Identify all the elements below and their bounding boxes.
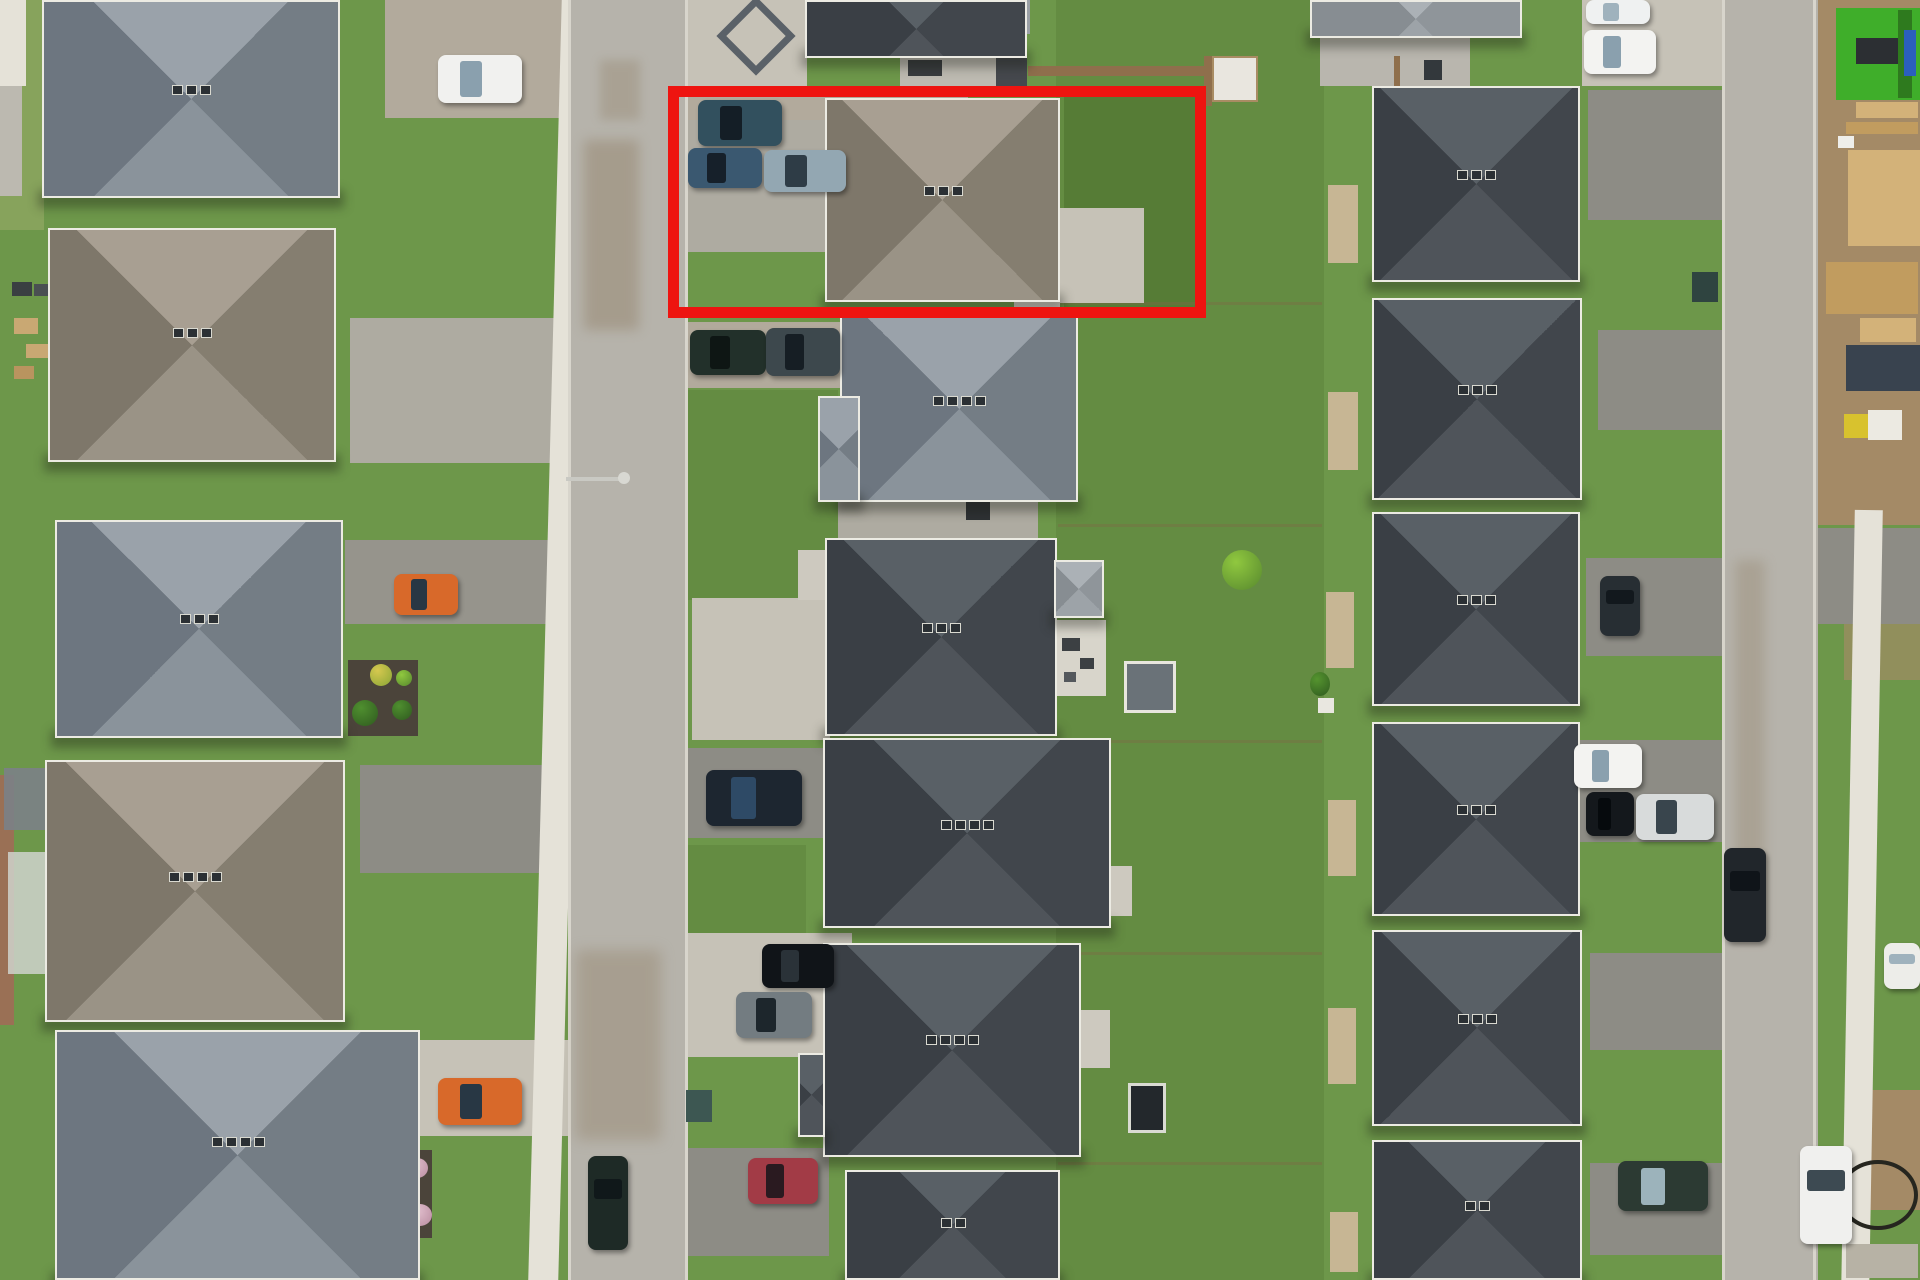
house-left-5 [55, 1030, 420, 1280]
roof-vent [922, 623, 933, 633]
roof-vent [950, 623, 961, 633]
roof-vent [975, 396, 986, 406]
bright-tree [1222, 550, 1262, 590]
car-windshield [731, 777, 756, 818]
lawn-furniture-3 [14, 366, 34, 379]
deck-r3 [1326, 592, 1354, 668]
backyard-fence-4 [1058, 952, 1322, 955]
curb-right-b [1813, 0, 1816, 1280]
house-right-1 [1372, 86, 1580, 282]
solar-pad-m5 [1128, 1083, 1166, 1133]
car-windshield [1730, 871, 1760, 892]
black-suv-m5 [762, 944, 834, 988]
highlight-box [668, 86, 1206, 318]
roof-vent [1458, 1014, 1469, 1024]
backyard-shed [1124, 661, 1176, 713]
roof-vent [201, 328, 212, 338]
roof-vent [940, 1035, 951, 1045]
roof-vent [954, 1035, 965, 1045]
roof-vent [183, 872, 194, 882]
house-mid-3 [825, 538, 1057, 736]
car-windshield [1807, 1170, 1844, 1192]
patio-furniture-1 [1062, 638, 1080, 651]
lumber-stack-2 [1846, 122, 1918, 134]
house-mid-5 [823, 943, 1081, 1157]
house-left-3 [55, 520, 343, 738]
roof-vent [194, 614, 205, 624]
car-windshield [766, 1164, 784, 1198]
roof-vent [180, 614, 191, 624]
roof-vent [1486, 385, 1497, 395]
house-left-1 [42, 0, 340, 198]
black-suv-r4 [1586, 792, 1634, 836]
gray-suv-m2 [766, 328, 840, 376]
car-windshield [1889, 954, 1915, 964]
machine-white [1868, 410, 1902, 440]
roof-vent [1472, 385, 1483, 395]
red-car-m6 [748, 1158, 818, 1204]
roof-vent [955, 820, 966, 830]
roof-vent [1472, 1014, 1483, 1024]
roof-vent [947, 396, 958, 406]
white-van-r4 [1574, 744, 1642, 788]
car-windshield [411, 579, 428, 609]
car-windshield [1641, 1168, 1664, 1205]
wood-fence-top [1028, 66, 1208, 76]
roof-vent [1471, 805, 1482, 815]
roof-vent [941, 1218, 952, 1228]
curb-right-a [1722, 0, 1725, 1280]
car-windshield [781, 950, 800, 983]
deck-r5 [1328, 1008, 1356, 1084]
car-windshield [1598, 798, 1610, 831]
patio-furniture-2 [1080, 658, 1094, 669]
car-windshield [1656, 800, 1676, 834]
roof-vent [969, 820, 980, 830]
house-right-5 [1372, 930, 1582, 1126]
car-windshield [1592, 750, 1610, 783]
car-windshield [594, 1179, 623, 1200]
silver-car-r4 [1636, 794, 1714, 840]
roof-vent [926, 1035, 937, 1045]
roof-vent [1479, 1201, 1490, 1211]
roof-vent [1465, 1201, 1476, 1211]
roof-vent [1471, 595, 1482, 605]
street-stain-3 [600, 60, 640, 120]
roof-vent [197, 872, 208, 882]
deck-r4 [1328, 800, 1356, 876]
roof-vent [208, 614, 219, 624]
black-car-street-right [1724, 848, 1766, 942]
backyard-fence-5 [1058, 1162, 1322, 1165]
house-mid-4 [823, 738, 1111, 928]
white-car-r0-a [1586, 0, 1650, 24]
streetlight-arm [566, 477, 620, 481]
house-right-2 [1372, 298, 1582, 500]
green-suv-r6 [1618, 1161, 1708, 1211]
bush-l3-b [370, 664, 392, 686]
orange-car-l3 [394, 574, 458, 615]
house-left-2 [48, 228, 336, 462]
roof-vent [936, 623, 947, 633]
roof-vent [1485, 170, 1496, 180]
backyard-fence-2 [1058, 524, 1322, 527]
house-right-3 [1372, 512, 1580, 706]
lawn-furniture-1 [14, 318, 38, 334]
roof-vent [1458, 385, 1469, 395]
deck-r2 [1328, 392, 1358, 470]
white-car-far-right [1884, 943, 1920, 989]
bush-r3 [1310, 672, 1330, 696]
roof-vent [186, 85, 197, 95]
shipping-container [1846, 345, 1920, 391]
navy-pickup-m4 [706, 770, 802, 826]
lumber-stack-1 [1856, 102, 1918, 118]
stone-steps-m5 [1080, 1010, 1110, 1068]
street-stain-1 [584, 140, 639, 330]
car-windshield [460, 1084, 482, 1119]
roof-vent [1457, 595, 1468, 605]
house-mid-2-garage [818, 396, 860, 502]
bin-l2-a [12, 282, 32, 296]
roof-vent [1471, 170, 1482, 180]
roof-vent [1457, 805, 1468, 815]
driveway-r2 [1598, 330, 1722, 430]
driveway-r1 [1588, 90, 1722, 220]
pallet-stack-bottom [1846, 1244, 1918, 1278]
bush-l3-c [392, 700, 412, 720]
bush-l3-a [352, 700, 378, 726]
dark-green-suv-m2 [690, 330, 766, 375]
driveway-r5 [1590, 953, 1722, 1050]
curb-left-a [568, 0, 571, 1280]
roof-vent [983, 820, 994, 830]
bin-m5 [686, 1090, 712, 1122]
gazebo-mid-3 [1054, 560, 1104, 618]
roof-vent [212, 1137, 223, 1147]
pavement-topleft-corner [0, 0, 26, 86]
house-left-4 [45, 760, 345, 1022]
roof-vent [173, 328, 184, 338]
car-windshield [1603, 3, 1620, 21]
roof-vent [200, 85, 211, 95]
dark-car-street-left [588, 1156, 628, 1250]
car-windshield [710, 336, 730, 369]
roof-vent [955, 1218, 966, 1228]
lumber-pile-2 [1826, 262, 1918, 314]
car-windshield [1606, 590, 1635, 603]
white-car-r0-b [1584, 30, 1656, 74]
car-windshield [1603, 36, 1622, 69]
patio-furniture-3 [1064, 672, 1076, 682]
ac-rtop [1424, 60, 1442, 80]
roof-vent [187, 328, 198, 338]
deck-r1 [1328, 185, 1358, 263]
roof-vent [172, 85, 183, 95]
streetlight-head [618, 472, 630, 484]
lumber-stack-3 [1860, 318, 1916, 342]
roof-vent [211, 872, 222, 882]
roof-vent [1486, 1014, 1497, 1024]
aerial-photo [0, 0, 1920, 1280]
fence-rtop [1394, 56, 1400, 86]
orange-car-l5 [438, 1078, 522, 1125]
roof-vent [941, 820, 952, 830]
deck-r6 [1330, 1212, 1358, 1272]
white-car-street-right [1800, 1146, 1852, 1244]
house-mid-2 [840, 316, 1078, 502]
car-windshield [756, 998, 776, 1032]
white-suv-l1 [438, 55, 522, 103]
car-windshield [460, 61, 482, 97]
debris-white [1838, 136, 1854, 148]
dark-suv-r3 [1600, 576, 1640, 636]
roof-vent [240, 1137, 251, 1147]
house-right-top [1310, 0, 1522, 38]
telehandler-engine [1856, 38, 1898, 64]
roof-vent [961, 396, 972, 406]
front-lawn-strip-m4 [688, 845, 806, 935]
roof-vent [1485, 805, 1496, 815]
road-topleft-corner [0, 86, 22, 196]
house-mid-5-garage [798, 1053, 825, 1137]
telehandler-decal [1904, 30, 1916, 76]
bin-right-lawn [1692, 272, 1718, 302]
roof-vent [254, 1137, 265, 1147]
ac-r3 [1318, 698, 1334, 713]
house-mid-top [805, 0, 1027, 58]
roof-vent [226, 1137, 237, 1147]
house-right-4 [1372, 722, 1580, 916]
roof-vent [1457, 170, 1468, 180]
lumber-pile-long [1848, 150, 1920, 246]
roof-vent [968, 1035, 979, 1045]
car-windshield [785, 334, 804, 370]
white-shed-top [1212, 56, 1258, 102]
house-right-6 [1372, 1140, 1582, 1280]
lawn-furniture-2 [26, 344, 48, 358]
bush-l3-d [396, 670, 412, 686]
driveway-m3 [692, 598, 830, 740]
roof-vent [1485, 595, 1496, 605]
machine-yellow [1844, 414, 1870, 438]
roof-vent [933, 396, 944, 406]
gray-car-m5 [736, 992, 812, 1038]
street-stain-2 [576, 950, 661, 1140]
house-mid-6 [845, 1170, 1060, 1280]
roof-vent [169, 872, 180, 882]
